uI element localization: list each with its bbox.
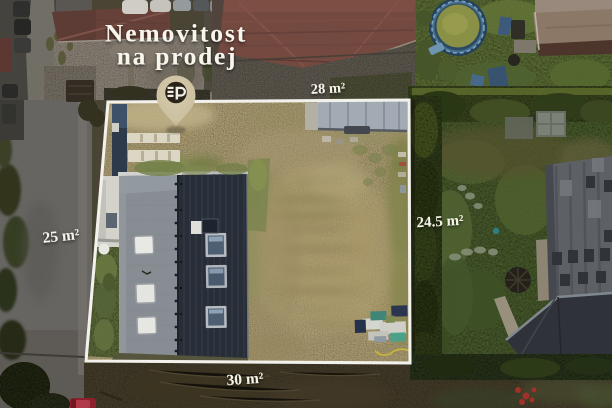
svg-text:28 m²: 28 m² [310, 80, 345, 98]
svg-text:30 m²: 30 m² [226, 370, 264, 390]
svg-text:24.5 m²: 24.5 m² [416, 213, 464, 231]
svg-text:na prodej: na prodej [117, 42, 237, 71]
